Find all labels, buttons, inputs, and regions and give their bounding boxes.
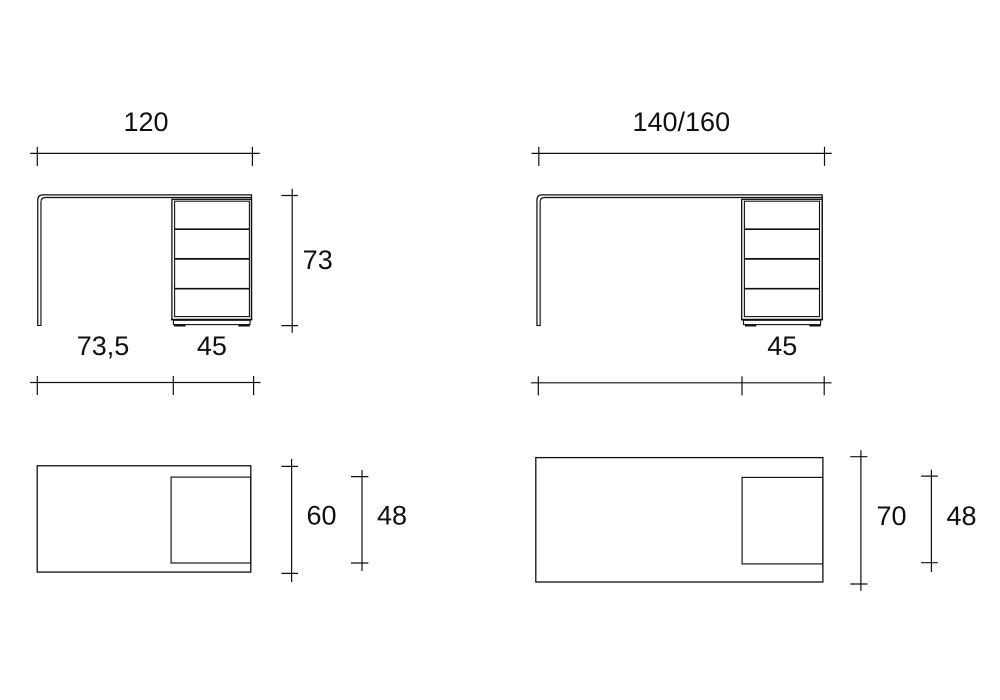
svg-text:73,5: 73,5 (77, 331, 130, 361)
svg-text:60: 60 (306, 501, 336, 531)
svg-text:70: 70 (876, 501, 906, 531)
svg-text:48: 48 (946, 501, 976, 531)
svg-text:73: 73 (303, 245, 333, 275)
svg-text:120: 120 (123, 107, 168, 137)
svg-text:48: 48 (377, 501, 407, 531)
svg-text:45: 45 (767, 331, 797, 361)
svg-text:140/160: 140/160 (632, 107, 730, 137)
svg-text:45: 45 (197, 331, 227, 361)
